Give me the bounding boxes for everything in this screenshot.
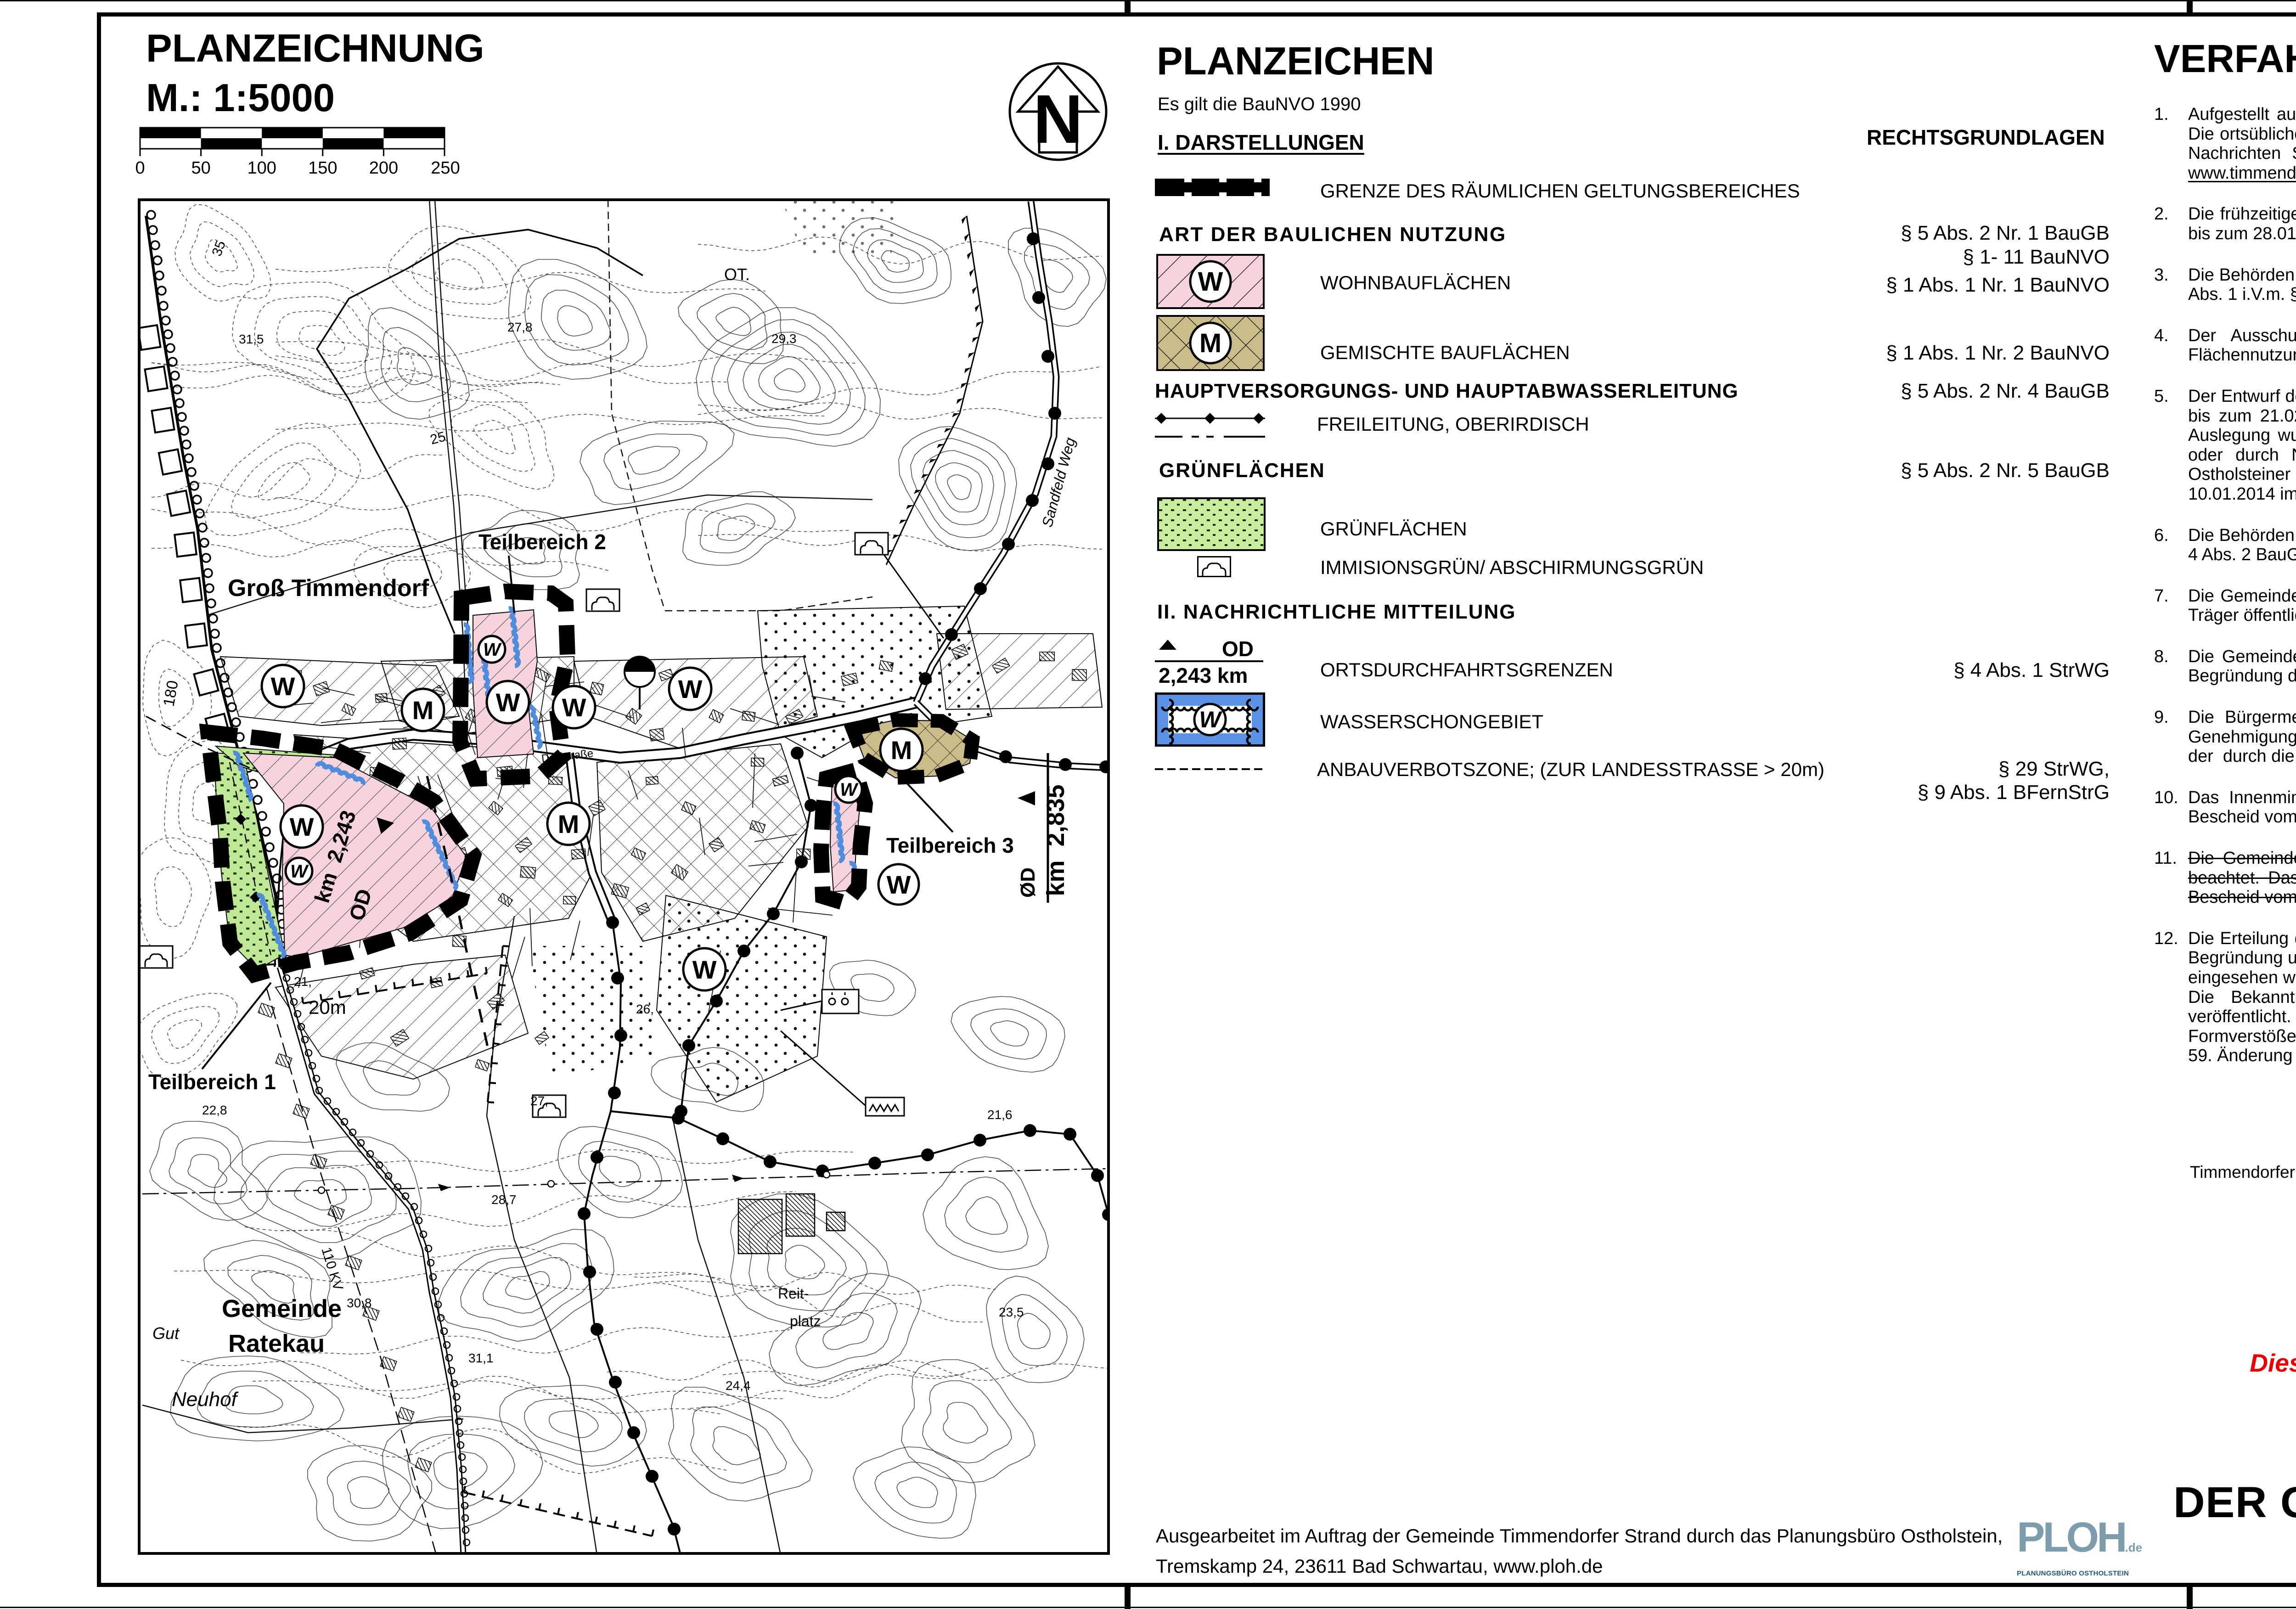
- svg-text:W: W: [1199, 707, 1222, 732]
- svg-text:200: 200: [369, 158, 398, 175]
- svg-text:2,243 km: 2,243 km: [1159, 664, 1248, 686]
- svg-text:0: 0: [135, 158, 145, 175]
- svg-text:50: 50: [191, 158, 210, 175]
- svg-text:W: W: [1198, 267, 1223, 297]
- svg-text:150: 150: [308, 158, 337, 175]
- svg-text:M: M: [1199, 328, 1221, 358]
- svg-text:100: 100: [247, 158, 276, 175]
- svg-text:OD: OD: [1222, 637, 1254, 661]
- svg-text:N: N: [1033, 80, 1083, 158]
- svg-text:250: 250: [431, 158, 460, 175]
